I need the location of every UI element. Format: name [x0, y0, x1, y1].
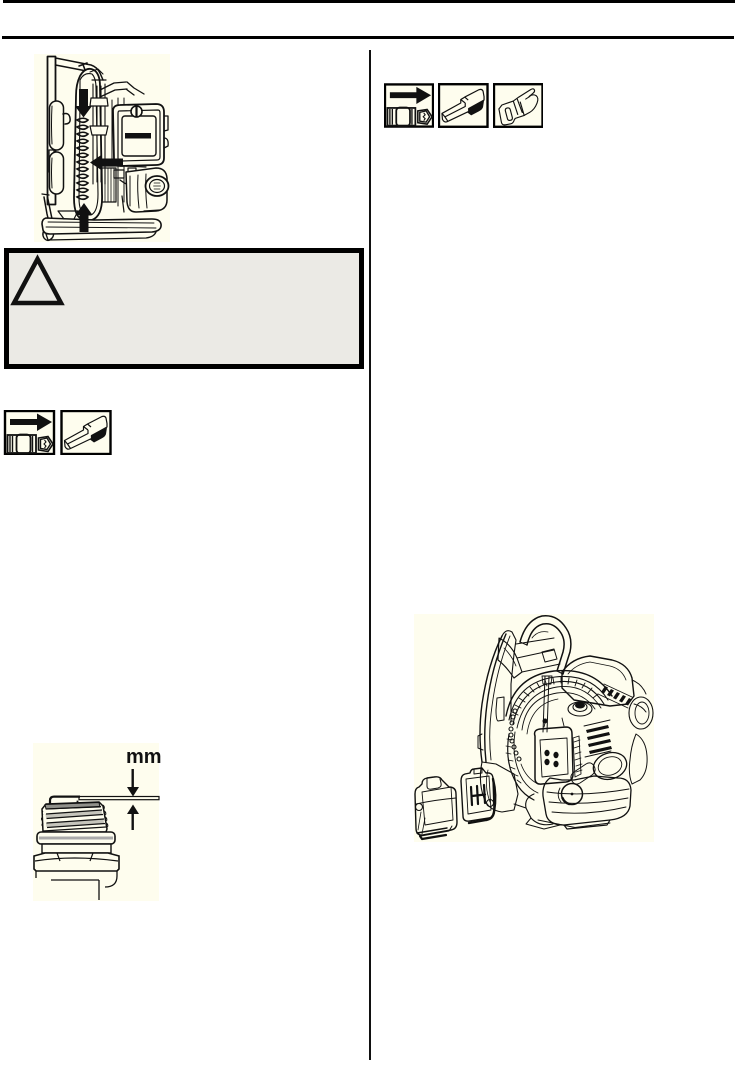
svg-text:mm: mm: [126, 746, 162, 768]
